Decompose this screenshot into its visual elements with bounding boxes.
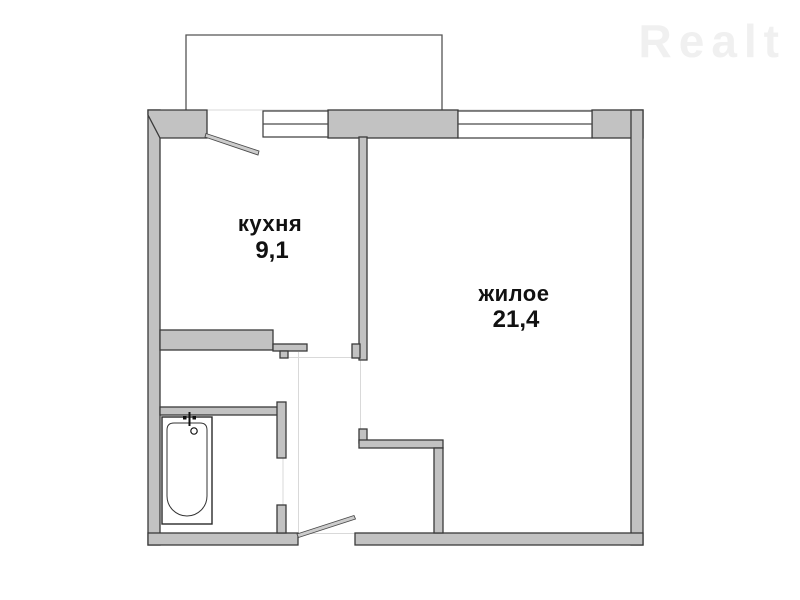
- exterior-wall-bottom-left: [148, 533, 298, 545]
- bathtub-icon: [162, 412, 212, 524]
- balcony-outline: [186, 35, 442, 110]
- kitchen-hall-wall: [160, 330, 273, 350]
- exterior-walls: [148, 110, 643, 545]
- kitchen-window-icon: [263, 111, 328, 137]
- threshold-lines: [160, 110, 643, 534]
- kitchen-living-divider-wall: [359, 137, 367, 360]
- balcony-door-swing-icon: [205, 134, 259, 156]
- kitchen-label: кухня: [238, 211, 302, 236]
- bathroom-top-wall: [160, 407, 278, 415]
- kitchen-hall-wall-stub: [280, 351, 288, 358]
- exterior-wall-right: [631, 110, 643, 545]
- living-entry-wall-horizontal: [359, 440, 443, 448]
- living-entry-wall-vertical: [434, 448, 443, 533]
- living-room-area-label: 21,4: [493, 306, 540, 333]
- exterior-wall-bottom-right: [355, 533, 643, 545]
- entrance-door-swing-icon: [297, 516, 356, 538]
- kitchen-area-label: 9,1: [255, 237, 288, 264]
- kitchen-hall-wall-strip: [273, 344, 307, 351]
- bathroom-right-wall-upper: [277, 402, 286, 458]
- bathroom-right-wall-lower: [277, 505, 286, 533]
- divider-wall-tab: [352, 344, 360, 358]
- floor-plan-canvas: кухня 9,1 жилое 21,4: [0, 0, 800, 600]
- floor-plan-page: Realt: [0, 0, 800, 600]
- living-room-label: жилое: [478, 281, 550, 306]
- living-window-icon: [458, 111, 592, 138]
- exterior-wall-top-middle: [328, 110, 458, 138]
- exterior-wall-left: [148, 110, 160, 545]
